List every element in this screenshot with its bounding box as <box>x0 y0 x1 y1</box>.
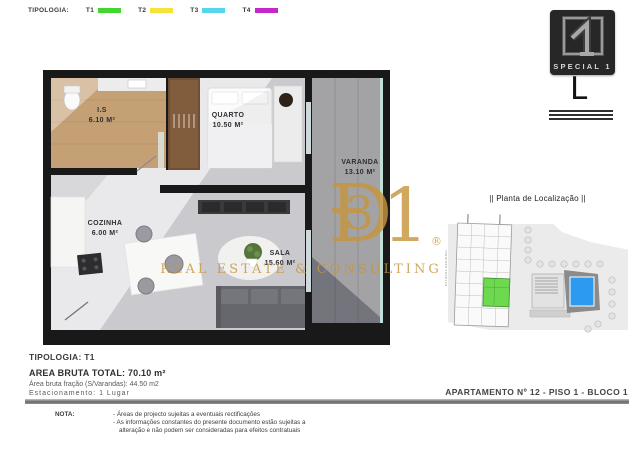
room-label-quarto: QUARTO <box>212 112 245 119</box>
cooktop <box>77 253 103 275</box>
bathroom-sink <box>128 80 146 88</box>
legend-label: TIPOLOGIA: <box>28 7 69 14</box>
room-label-varanda: VARANDA <box>341 159 378 166</box>
legend-swatch-t4 <box>255 8 278 13</box>
room-area-quarto: 10.50 M² <box>213 122 244 129</box>
legend-item-t4: T4 <box>242 7 277 14</box>
divider-bar <box>25 399 629 404</box>
legend-swatch-t1 <box>98 8 121 13</box>
document-canvas: TIPOLOGIA: T1 T2 T3 T4 SPECIAL 1 L <box>0 0 640 453</box>
plant <box>244 243 262 261</box>
legend-item-t1: T1 <box>86 7 121 14</box>
nota-label: NOTA: <box>55 411 74 419</box>
special1-logo: SPECIAL 1 <box>550 10 615 75</box>
legend-code-t2: T2 <box>138 7 146 14</box>
location-title: || Planta de Localização || <box>440 194 635 203</box>
nota-block: NOTA: - Áreas de projecto sujeitas a eve… <box>55 411 306 435</box>
legend-code-t4: T4 <box>242 7 250 14</box>
room-area-sala: 15.60 M² <box>265 260 296 267</box>
summary-area-fracao: Área bruta fração (S/Varandas): 44.50 m2 <box>29 381 159 388</box>
legend-swatch-t2 <box>150 8 173 13</box>
nota-line-1: - Áreas de projecto sujeitas a eventuais… <box>113 411 306 419</box>
room-label-cozinha: COZINHA <box>88 220 123 227</box>
central-block <box>532 274 564 308</box>
bedroom-plant <box>279 93 293 107</box>
numeral-one-icon <box>558 14 608 60</box>
legend-swatch-t3 <box>202 8 225 13</box>
brand-lines-icon <box>549 110 613 122</box>
apartment-reference: APARTAMENTO Nº 12 - PISO 1 - BLOCO 1 <box>445 387 628 397</box>
highlighted-unit <box>483 278 510 307</box>
floorplan: I.S 6.10 M² QUARTO 10.50 M² VARANDA 13.1… <box>40 62 400 348</box>
street-label: ESTRADA REGIONAL <box>444 249 448 286</box>
summary-estacionamento: Estacionamento: 1 Lugar <box>29 390 130 397</box>
stool <box>136 226 152 242</box>
room-label-is: I.S <box>97 107 107 114</box>
brand-l-mark: L <box>570 74 587 105</box>
legend-item-t2: T2 <box>138 7 173 14</box>
logo-caption: SPECIAL 1 <box>553 62 611 71</box>
siteplan: ESTRADA REGIONAL <box>440 214 635 342</box>
room-area-varanda: 13.10 M² <box>345 169 376 176</box>
balcony-glass-rail <box>380 78 383 323</box>
summary-area-total: AREA BRUTA TOTAL: 70.10 m² <box>29 368 166 378</box>
room-label-sala: SALA <box>270 250 291 257</box>
legend-item-t3: T3 <box>190 7 225 14</box>
room-area-cozinha: 6.00 M² <box>92 230 119 237</box>
summary-tipologia: TIPOLOGIA: T1 <box>29 352 95 362</box>
nota-line-2: - As informações constantes do presente … <box>113 419 306 427</box>
shower-glass <box>158 132 164 168</box>
nota-line-3: alteração e não podem ser consideradas p… <box>119 427 306 435</box>
legend-code-t3: T3 <box>190 7 198 14</box>
stool <box>138 278 154 294</box>
stool <box>165 255 183 273</box>
pool <box>570 277 594 306</box>
legend-code-t1: T1 <box>86 7 94 14</box>
room-area-is: 6.10 M² <box>89 117 116 124</box>
typology-legend: TIPOLOGIA: T1 T2 T3 T4 <box>28 7 278 14</box>
kitchen-island <box>124 233 203 295</box>
